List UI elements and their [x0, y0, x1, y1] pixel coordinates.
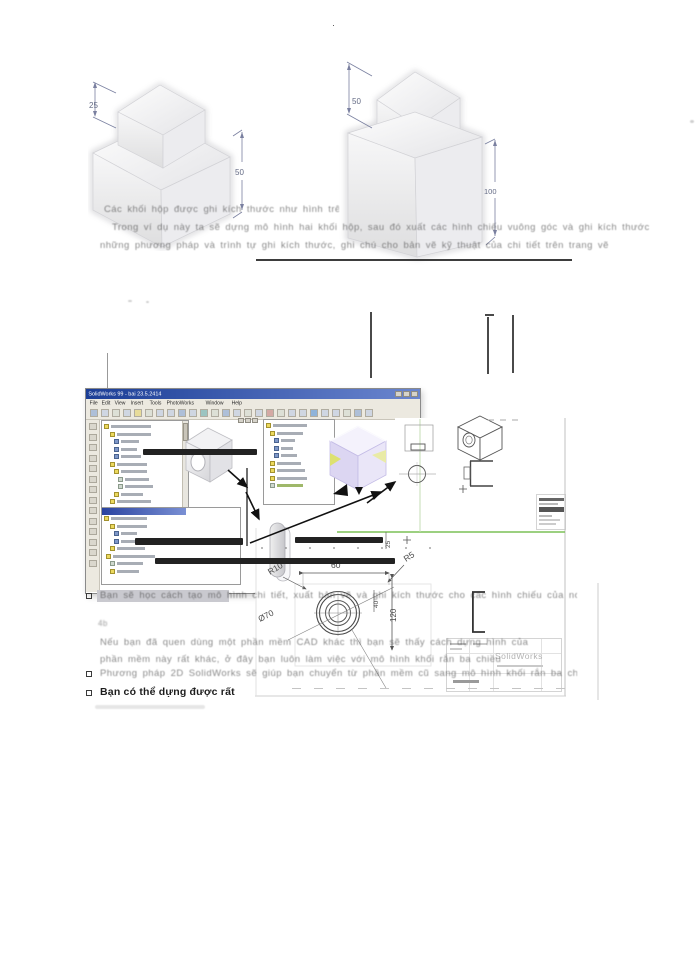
- toolbar-icon[interactable]: [321, 409, 329, 417]
- toolbar-icon[interactable]: [145, 409, 153, 417]
- tree-item[interactable]: [102, 476, 180, 484]
- tree-item[interactable]: [102, 468, 180, 476]
- scan-smudge: [95, 705, 205, 709]
- menu-window[interactable]: Window: [202, 400, 224, 405]
- tree-item[interactable]: [102, 431, 180, 439]
- tree-item[interactable]: [264, 452, 334, 460]
- toolbar-icon[interactable]: [101, 409, 109, 417]
- toolbar-icon[interactable]: [134, 409, 142, 417]
- page-corner-mark: ·: [332, 20, 335, 30]
- svg-text:100: 100: [484, 187, 497, 196]
- dimension-25: 25: [89, 82, 116, 128]
- toolbar-icon[interactable]: [89, 465, 97, 472]
- ghost-line: [107, 353, 108, 392]
- svg-text:50: 50: [235, 168, 244, 177]
- tree-item[interactable]: [264, 437, 334, 445]
- menu-tools[interactable]: Tools: [146, 400, 161, 405]
- toolbar-icon[interactable]: [89, 423, 97, 430]
- menu-insert[interactable]: Insert: [127, 400, 143, 405]
- toolbar-icon[interactable]: [89, 518, 97, 525]
- menu-help[interactable]: Help: [228, 400, 242, 405]
- minimize-button[interactable]: [395, 391, 402, 397]
- menu-photoworks[interactable]: PhotoWorks: [163, 400, 194, 405]
- intro-line-2: Trong ví dụ này ta sẽ dựng mô hình hai k…: [112, 222, 652, 233]
- toolbar-icon[interactable]: [89, 549, 97, 556]
- toolbar-icon[interactable]: [89, 539, 97, 546]
- toolbar-icon[interactable]: [112, 409, 120, 417]
- tree-item[interactable]: [102, 498, 180, 506]
- toolbar-icon[interactable]: [244, 409, 252, 417]
- close-button[interactable]: [252, 418, 258, 423]
- toolbar-icon[interactable]: [277, 409, 285, 417]
- toolbar-icon[interactable]: [90, 409, 98, 417]
- toolbar-icon[interactable]: [89, 560, 97, 567]
- tree-item[interactable]: [102, 560, 240, 568]
- tree-item[interactable]: [102, 461, 180, 469]
- toolbar-icon[interactable]: [332, 409, 340, 417]
- title-block-small: [536, 494, 566, 530]
- toolbar-icon[interactable]: [288, 409, 296, 417]
- toolbar-icon[interactable]: [189, 409, 197, 417]
- tree-item[interactable]: [264, 430, 334, 438]
- ghost-line: [485, 314, 494, 316]
- bullet-square: [86, 593, 92, 599]
- paragraph-underline: [256, 259, 572, 261]
- bottom-bullet-line-3-bold: Bạn có thể dựng được rất: [100, 686, 235, 698]
- tree-item[interactable]: [102, 545, 240, 553]
- model-shaded-cube: [326, 422, 390, 494]
- scan-speck: [146, 301, 149, 303]
- toolbar-icon[interactable]: [89, 444, 97, 451]
- tree-item[interactable]: [102, 538, 240, 546]
- toolbar-icon[interactable]: [156, 409, 164, 417]
- toolbar-icon[interactable]: [89, 507, 97, 514]
- toolbar-icon[interactable]: [266, 409, 274, 417]
- tree-item[interactable]: [102, 483, 180, 491]
- close-button[interactable]: [411, 391, 418, 397]
- big-box: [348, 112, 482, 257]
- toolbar-icon[interactable]: [211, 409, 219, 417]
- model-part-with-hole: [178, 420, 240, 490]
- tree-item[interactable]: [102, 438, 180, 446]
- maximize-button[interactable]: [245, 418, 251, 423]
- tree-item[interactable]: [102, 491, 180, 499]
- toolbar-icon[interactable]: [200, 409, 208, 417]
- tree-item[interactable]: [264, 482, 334, 490]
- scan-speck: [128, 300, 132, 302]
- toolbar-icon[interactable]: [299, 409, 307, 417]
- panel-titlebar: [102, 508, 186, 515]
- bullet-square: [86, 690, 92, 696]
- toolbar-icon[interactable]: [233, 409, 241, 417]
- tree-item[interactable]: [102, 423, 180, 431]
- tree-item[interactable]: [102, 530, 240, 538]
- toolbar-icon[interactable]: [354, 409, 362, 417]
- window-titlebar: SolidWorks 99 - bai 23.5.2414: [86, 389, 420, 399]
- menu-edit[interactable]: Edit: [98, 400, 110, 405]
- toolbar-icon[interactable]: [343, 409, 351, 417]
- toolbar-icon[interactable]: [89, 476, 97, 483]
- ghost-line: [512, 315, 514, 373]
- tree-item[interactable]: [264, 475, 334, 483]
- feature-tree-panel-doc2: [263, 419, 335, 505]
- bottom-bullet-line-1: Bạn sẽ học cách tạo mô hình chi tiết, xu…: [100, 590, 577, 601]
- child-window-buttons: [238, 418, 258, 423]
- bottom-paragraph-line-2: phần mềm này rất khác, ở đây bạn luôn là…: [100, 654, 577, 665]
- tree-item[interactable]: [102, 446, 180, 454]
- bottom-bullet-line-2: Phương pháp 2D SolidWorks sẽ giúp bạn ch…: [100, 668, 577, 679]
- window-title: SolidWorks 99 - bai 23.5.2414: [86, 391, 161, 396]
- toolbar-icon[interactable]: [222, 409, 230, 417]
- dimension-50: 50: [347, 62, 372, 128]
- bottom-sub-label: 4b: [98, 619, 118, 628]
- tree-item[interactable]: [102, 568, 240, 576]
- toolbar-icon[interactable]: [123, 409, 131, 417]
- ghost-line: [487, 317, 489, 374]
- toolbar-icon[interactable]: [167, 409, 175, 417]
- ghost-line: [370, 312, 372, 378]
- bottom-paragraph-line-1: Nếu bạn đã quen dùng một phần mềm CAD kh…: [100, 637, 577, 648]
- svg-text:25: 25: [89, 101, 98, 110]
- maximize-button[interactable]: [403, 391, 410, 397]
- tree-item[interactable]: [102, 523, 240, 531]
- toolbar-icon[interactable]: [255, 409, 263, 417]
- bullet-square: [86, 671, 92, 677]
- tree-item[interactable]: [102, 453, 180, 461]
- intro-line-1: Các khối hộp được ghi kích thước như hìn…: [104, 204, 339, 215]
- tree-item[interactable]: [264, 422, 334, 430]
- toolbar-icon[interactable]: [310, 409, 318, 417]
- intro-line-3: những phương pháp và trình tự ghi kích t…: [100, 240, 648, 251]
- feature-tree-panel-lower: [101, 507, 241, 585]
- toolbar-icon[interactable]: [89, 486, 97, 493]
- tree-item[interactable]: [264, 467, 334, 475]
- drawing-iso-view: [450, 410, 510, 470]
- book-page: · 25: [0, 0, 700, 960]
- toolbar-icon[interactable]: [178, 409, 186, 417]
- toolbar-icon[interactable]: [89, 528, 97, 535]
- toolbar-icon[interactable]: [365, 409, 373, 417]
- tree-item[interactable]: [264, 460, 334, 468]
- toolbar-icon[interactable]: [89, 455, 97, 462]
- tree-item[interactable]: [102, 553, 240, 561]
- menu-file[interactable]: File: [86, 400, 98, 405]
- feature-tree-panel: [101, 420, 189, 516]
- side-toolbar: [86, 420, 100, 592]
- toolbar-icon[interactable]: [89, 434, 97, 441]
- toolbar-icon[interactable]: [89, 497, 97, 504]
- menu-view[interactable]: View: [111, 400, 125, 405]
- model-small-slab: [263, 518, 303, 588]
- tree-item[interactable]: [102, 515, 240, 523]
- scan-speck: [690, 120, 694, 123]
- svg-text:50: 50: [352, 97, 361, 106]
- tree-item[interactable]: [264, 445, 334, 453]
